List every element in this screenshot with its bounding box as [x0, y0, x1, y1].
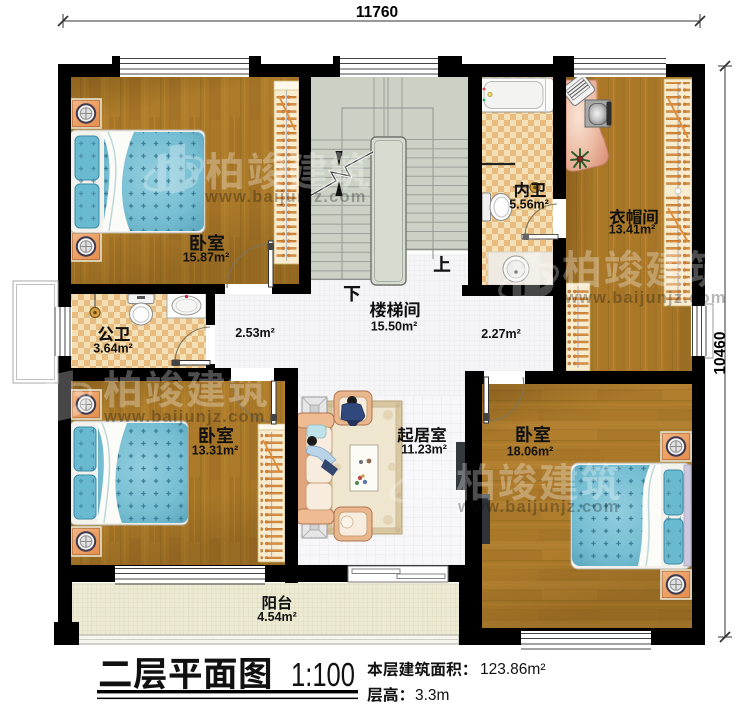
svg-text:15.87m²: 15.87m²: [183, 251, 230, 265]
svg-text:www.baijunjz.com: www.baijunjz.com: [204, 188, 367, 206]
svg-text:1:100: 1:100: [291, 656, 355, 693]
svg-text:13.41m²: 13.41m²: [609, 223, 656, 237]
svg-text:2.53m²: 2.53m²: [235, 326, 275, 340]
svg-text:123.86m²: 123.86m²: [480, 661, 545, 678]
svg-text:www.baijunjz.com: www.baijunjz.com: [564, 289, 727, 307]
svg-text:11760: 11760: [356, 4, 398, 21]
svg-text:10460: 10460: [712, 331, 729, 374]
svg-text:www.baijunjz.com: www.baijunjz.com: [457, 498, 620, 516]
svg-text:4.54m²: 4.54m²: [257, 610, 297, 624]
svg-text:3.3m: 3.3m: [415, 687, 449, 704]
svg-text:2.27m²: 2.27m²: [481, 327, 521, 341]
svg-text:3.64m²: 3.64m²: [93, 342, 133, 356]
svg-text:13.31m²: 13.31m²: [192, 444, 239, 458]
svg-text:15.50m²: 15.50m²: [371, 320, 418, 334]
svg-text:18.06m²: 18.06m²: [507, 445, 554, 459]
svg-text:5.56m²: 5.56m²: [509, 198, 549, 212]
svg-text:11.23m²: 11.23m²: [401, 443, 447, 457]
svg-text:www.baijunjz.com: www.baijunjz.com: [103, 408, 266, 426]
